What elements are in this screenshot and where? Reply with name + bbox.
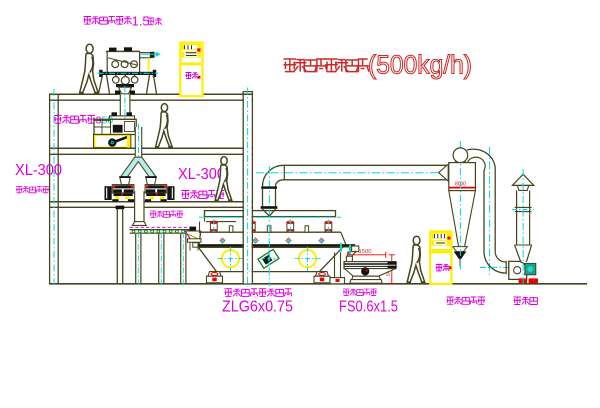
- svg-text:1500: 1500: [359, 249, 372, 255]
- svg-text:XL-300: XL-300: [178, 166, 225, 183]
- svg-text:1.5: 1.5: [132, 14, 150, 29]
- svg-text:ZLG6x0.75: ZLG6x0.75: [222, 299, 293, 316]
- svg-text:FS0.6x1.5: FS0.6x1.5: [339, 299, 398, 316]
- svg-text:XL-300: XL-300: [15, 162, 62, 179]
- svg-text:(500kg/h): (500kg/h): [368, 52, 472, 80]
